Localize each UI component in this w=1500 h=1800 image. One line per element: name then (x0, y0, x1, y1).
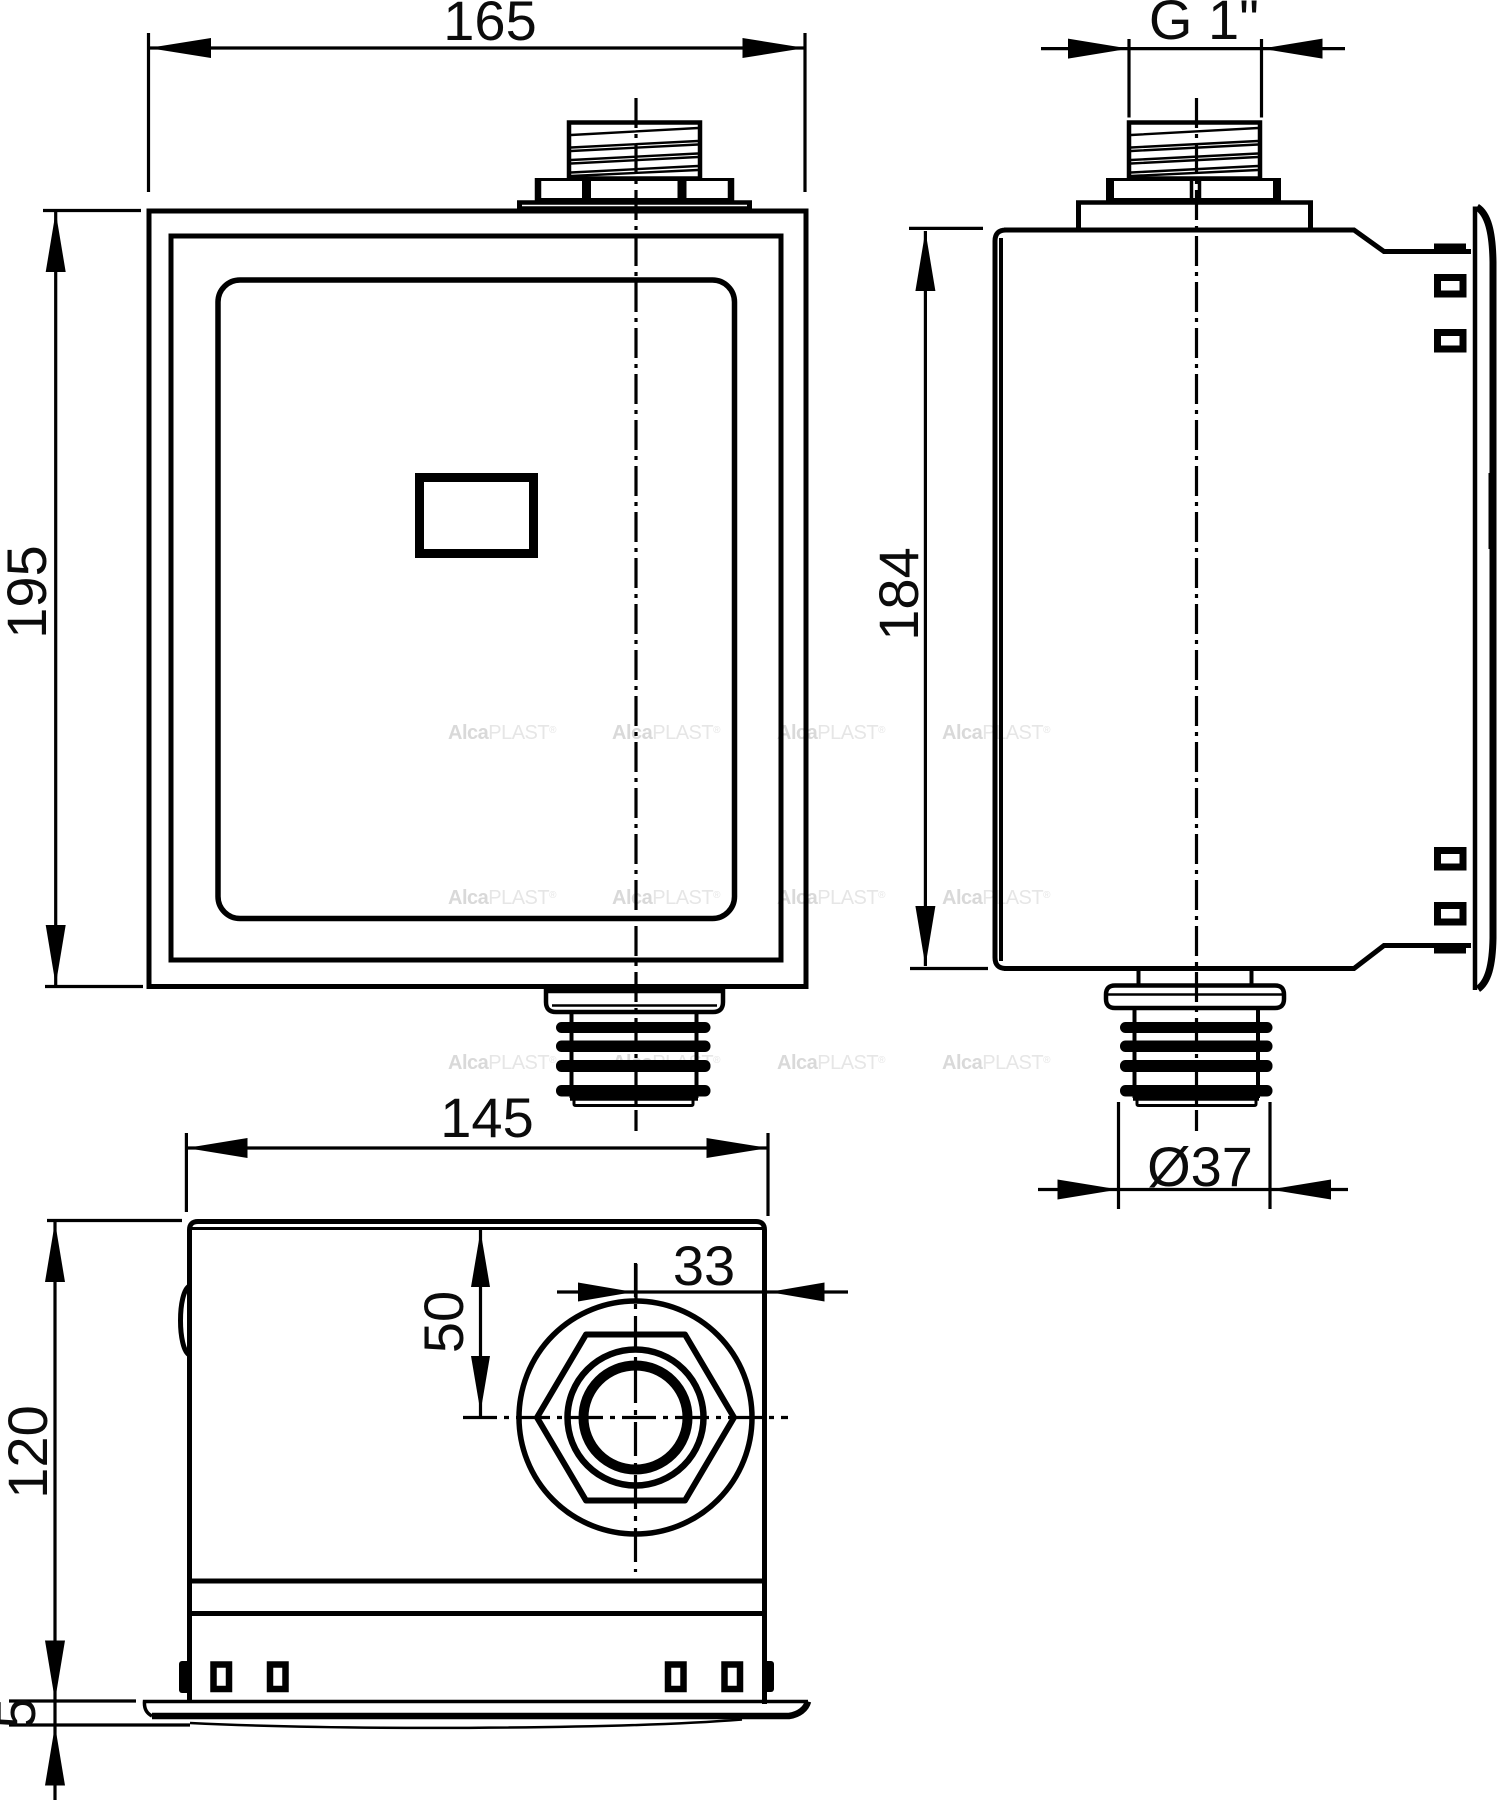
svg-text:AlcaPLAST®: AlcaPLAST® (448, 887, 557, 909)
svg-text:195: 195 (0, 545, 58, 638)
svg-text:AlcaPLAST®: AlcaPLAST® (777, 722, 886, 744)
svg-text:G 1": G 1" (1149, 0, 1259, 51)
svg-text:AlcaPLAST®: AlcaPLAST® (777, 887, 886, 909)
svg-text:5: 5 (0, 1697, 47, 1728)
svg-text:AlcaPLAST®: AlcaPLAST® (448, 1052, 557, 1074)
svg-text:145: 145 (440, 1086, 533, 1149)
svg-text:AlcaPLAST®: AlcaPLAST® (612, 722, 721, 744)
svg-text:Ø37: Ø37 (1147, 1135, 1253, 1198)
svg-text:184: 184 (867, 547, 930, 640)
svg-text:120: 120 (0, 1405, 59, 1498)
svg-text:AlcaPLAST®: AlcaPLAST® (612, 887, 721, 909)
svg-text:33: 33 (673, 1234, 735, 1297)
svg-text:AlcaPLAST®: AlcaPLAST® (942, 1052, 1051, 1074)
svg-text:AlcaPLAST®: AlcaPLAST® (777, 1052, 886, 1074)
svg-text:AlcaPLAST®: AlcaPLAST® (448, 722, 557, 744)
svg-text:50: 50 (412, 1291, 475, 1353)
svg-text:165: 165 (443, 0, 536, 52)
